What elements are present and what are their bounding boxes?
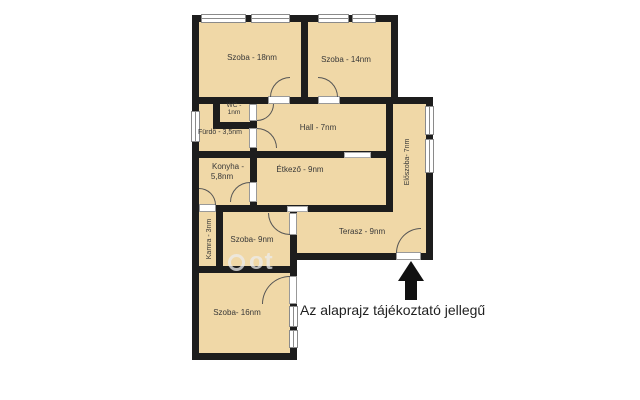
door-szoba14	[318, 96, 340, 104]
room-label-eloszoba: Előszoba- 7nm	[404, 139, 412, 186]
room-label-etkezo: Étkező - 9nm	[276, 165, 323, 175]
room-label-szoba14: Szoba - 14nm	[321, 55, 371, 65]
door-kamra	[199, 204, 216, 212]
room-label-wc-line2: 1nm	[228, 109, 241, 117]
window-szoba18-right	[251, 14, 290, 23]
room-label-terasz: Terasz - 9nm	[339, 227, 385, 237]
room-label-szoba16: Szoba- 16nm	[213, 308, 261, 318]
watermark-logo: ot	[228, 248, 274, 276]
door-wc	[249, 104, 257, 121]
window-eloszoba-upper	[425, 106, 434, 135]
window-szoba16-upper	[289, 306, 298, 327]
window-eloszoba-lower	[425, 139, 434, 173]
door-szoba16	[289, 276, 297, 304]
entrance-arrow-icon	[398, 261, 424, 281]
door-konyha	[249, 182, 257, 202]
wall-szoba16-bottom	[192, 353, 297, 360]
window-furdo	[191, 111, 200, 142]
watermark-text: ot	[249, 248, 274, 276]
room-label-kamra: Kamra - 3nm	[206, 219, 214, 259]
watermark-circle-icon	[228, 254, 245, 271]
entrance-arrow-stem	[405, 280, 417, 300]
door-szoba18	[268, 96, 290, 104]
door-szoba9	[289, 213, 297, 235]
wall-szoba14-right	[391, 15, 398, 104]
opening-hall-etkezo	[344, 152, 371, 158]
room-label-szoba9: Szoba- 9nm	[230, 235, 273, 245]
door-furdo	[249, 128, 257, 148]
window-szoba18-left	[201, 14, 246, 23]
wall-kamra-right	[216, 205, 223, 273]
room-label-szoba18: Szoba - 18nm	[227, 53, 277, 63]
window-szoba14-right	[352, 14, 376, 23]
wall-left-outer	[192, 15, 199, 360]
room-label-hall: Hall - 7nm	[300, 123, 336, 133]
opening-etkezo-terasz	[287, 206, 308, 212]
room-label-furdo: Fürdő - 3,5nm	[198, 129, 242, 137]
wall-eloszoba-left	[386, 97, 393, 212]
wall-bedroom-divider	[301, 15, 308, 104]
window-szoba16-lower	[289, 330, 298, 348]
disclaimer-text: Az alaprajz tájékoztató jellegű	[300, 302, 485, 318]
floorplan-image: Szoba - 18nm Szoba - 14nm WC - 1nm Fürdő…	[0, 0, 640, 400]
room-label-konyha-line2: 5,8nm	[211, 172, 233, 182]
window-szoba14-left	[318, 14, 349, 23]
room-label-konyha-line1: Konyha -	[212, 162, 244, 172]
door-terasz-entrance	[396, 252, 421, 260]
